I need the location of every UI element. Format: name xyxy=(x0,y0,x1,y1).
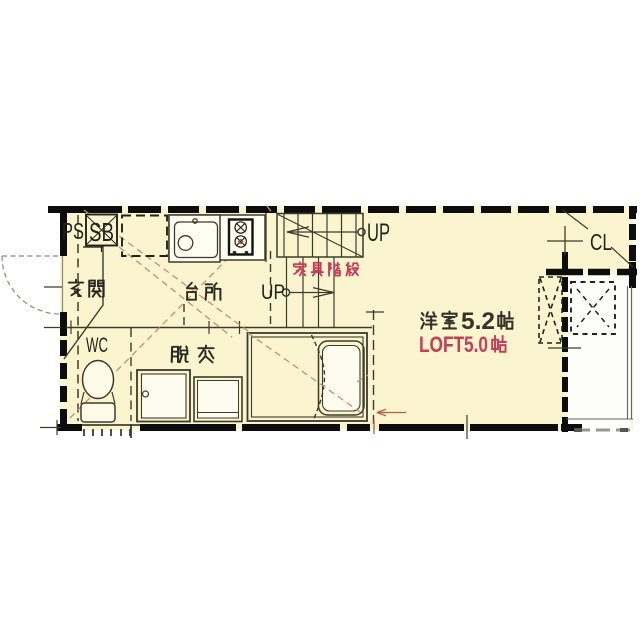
svg-text:PS: PS xyxy=(62,218,84,244)
svg-text:WC: WC xyxy=(86,334,108,357)
svg-text:UP: UP xyxy=(367,219,390,247)
svg-text:LOFT5.0: LOFT5.0 xyxy=(419,332,488,357)
svg-text:5.2: 5.2 xyxy=(461,308,495,335)
svg-text:UP: UP xyxy=(261,281,285,304)
svg-text:SB: SB xyxy=(89,217,114,247)
svg-text:CL: CL xyxy=(590,229,612,255)
